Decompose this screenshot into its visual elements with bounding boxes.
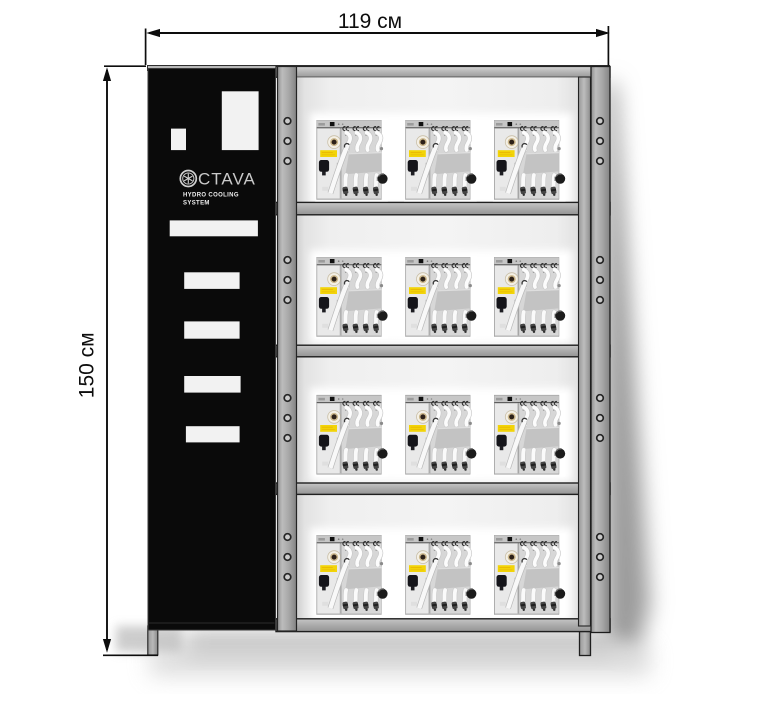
svg-text:150 см: 150 см <box>76 332 99 398</box>
svg-text:SYSTEM: SYSTEM <box>183 201 210 207</box>
svg-text:CTAVA: CTAVA <box>198 170 256 189</box>
svg-text:HYDRO COOLING: HYDRO COOLING <box>183 193 239 199</box>
svg-text:119 см: 119 см <box>338 10 402 33</box>
